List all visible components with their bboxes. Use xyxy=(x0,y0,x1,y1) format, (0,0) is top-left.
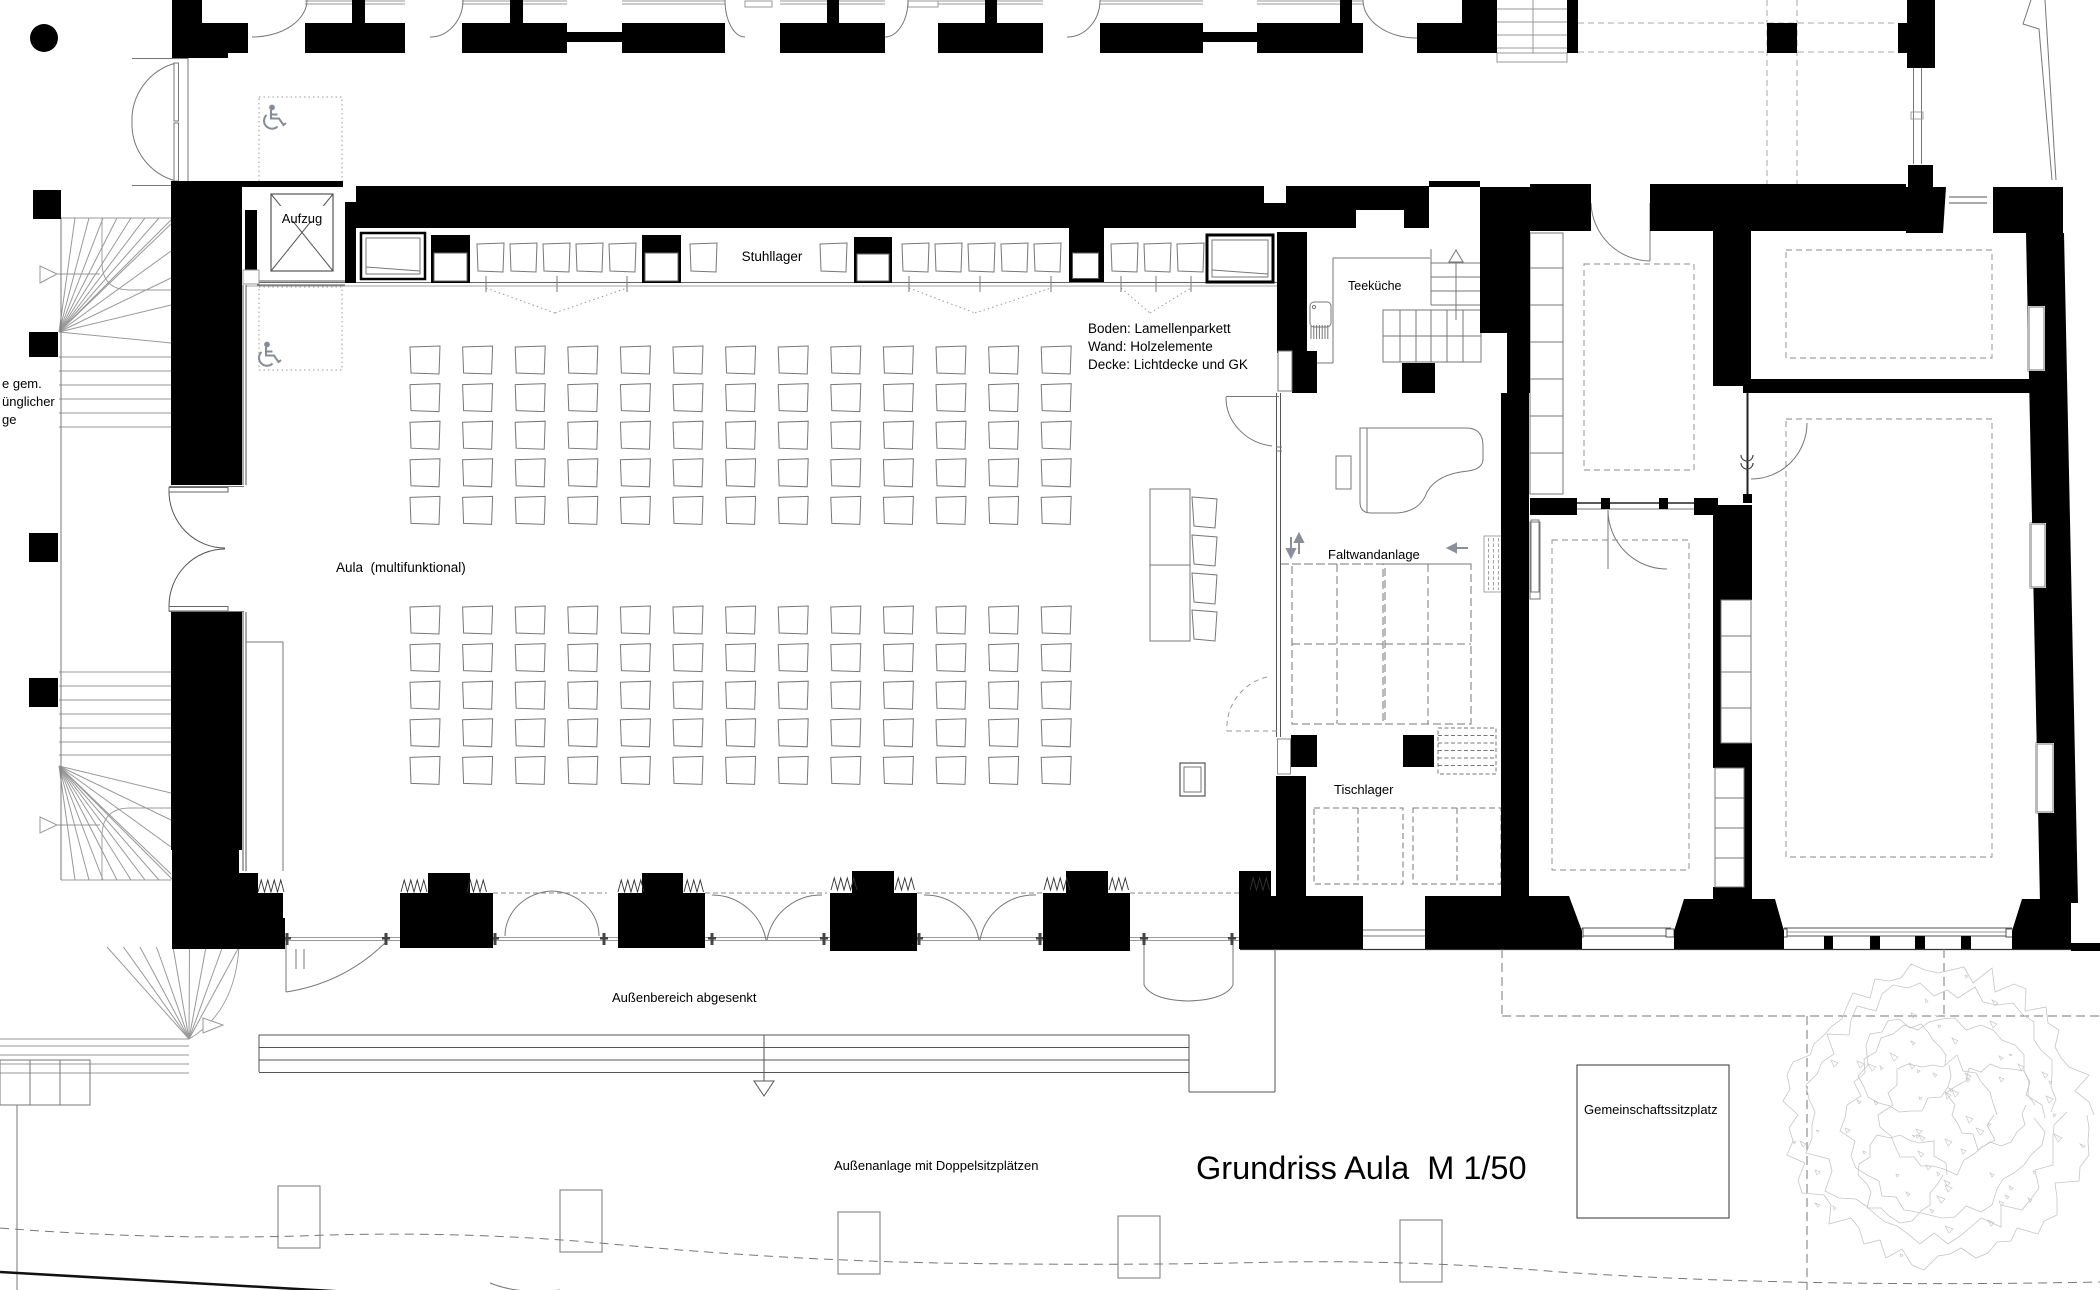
svg-text:Wand: Holzelemente: Wand: Holzelemente xyxy=(1088,339,1213,354)
svg-text:ge: ge xyxy=(2,412,16,427)
svg-text:e gem.: e gem. xyxy=(2,376,42,391)
svg-text:Außenanlage mit Doppelsitzplät: Außenanlage mit Doppelsitzplätzen xyxy=(834,1158,1039,1173)
svg-text:Aula (multifunktional): Aula (multifunktional) xyxy=(336,560,466,575)
svg-text:Faltwandanlage: Faltwandanlage xyxy=(1328,547,1420,562)
svg-text:Grundriss Aula M 1/50: Grundriss Aula M 1/50 xyxy=(1196,1150,1527,1186)
svg-text:Gemeinschaftssitzplatz: Gemeinschaftssitzplatz xyxy=(1584,1102,1718,1117)
svg-text:Tischlager: Tischlager xyxy=(1334,782,1394,797)
svg-text:Teeküche: Teeküche xyxy=(1348,279,1402,293)
svg-text:Stuhllager: Stuhllager xyxy=(742,249,803,264)
svg-text:Außenbereich abgesenkt: Außenbereich abgesenkt xyxy=(612,990,757,1005)
svg-text:Decke: Lichtdecke und GK: Decke: Lichtdecke und GK xyxy=(1088,357,1248,372)
svg-text:Aufzug: Aufzug xyxy=(282,211,322,226)
svg-text:ünglicher: ünglicher xyxy=(2,394,55,409)
svg-text:Boden: Lamellenparkett: Boden: Lamellenparkett xyxy=(1088,321,1231,336)
